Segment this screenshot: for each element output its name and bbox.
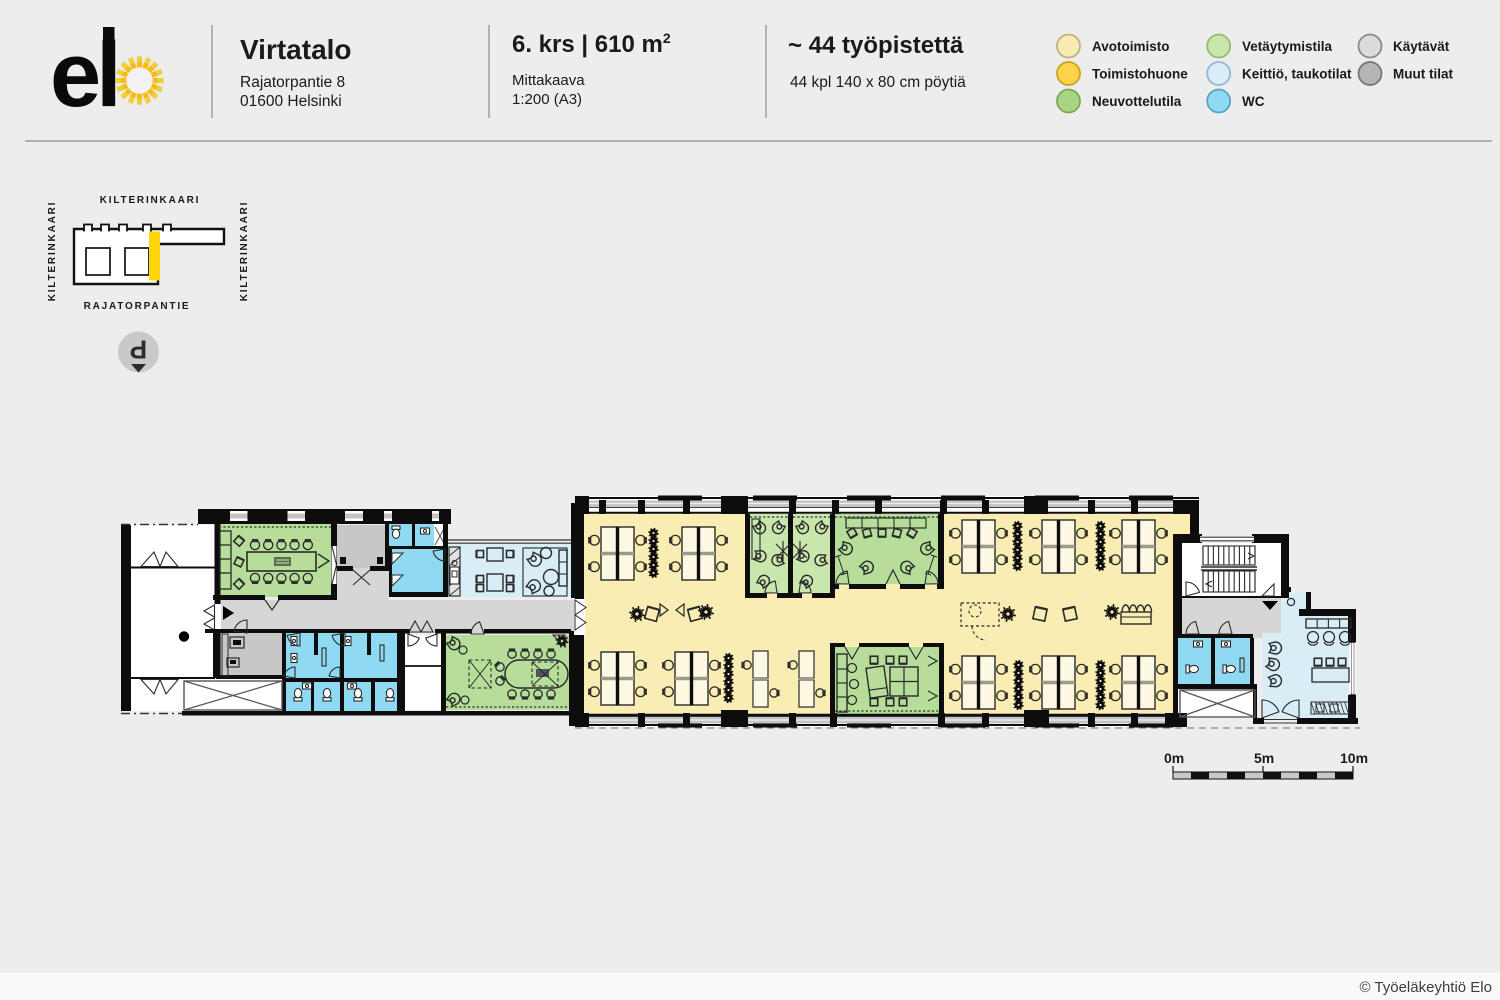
svg-text:RAJATORPANTIE: RAJATORPANTIE <box>84 301 191 312</box>
svg-text:Rajatorpantie 8: Rajatorpantie 8 <box>240 74 345 91</box>
svg-text:01600 Helsinki: 01600 Helsinki <box>240 93 342 110</box>
svg-text:P: P <box>130 335 147 365</box>
svg-text:Käytävät: Käytävät <box>1393 39 1450 54</box>
svg-text:WC: WC <box>1242 94 1265 109</box>
svg-text:KILTERINKAARI: KILTERINKAARI <box>100 195 200 206</box>
svg-text:5m: 5m <box>1254 750 1274 766</box>
svg-text:Muut tilat: Muut tilat <box>1393 67 1453 82</box>
svg-text:0m: 0m <box>1164 750 1184 766</box>
svg-text:KILTERINKAARI: KILTERINKAARI <box>47 201 58 301</box>
svg-text:10m: 10m <box>1340 750 1368 766</box>
svg-text:Toimistohuone: Toimistohuone <box>1092 67 1188 82</box>
svg-text:1:200 (A3): 1:200 (A3) <box>512 91 582 108</box>
svg-text:Vetäytymistila: Vetäytymistila <box>1242 39 1333 54</box>
svg-text:Virtatalo: Virtatalo <box>240 34 352 65</box>
svg-text:Keittiö, taukotilat: Keittiö, taukotilat <box>1242 67 1352 82</box>
svg-text:© Työeläkeyhtiö Elo: © Työeläkeyhtiö Elo <box>1359 979 1492 996</box>
svg-text:KILTERINKAARI: KILTERINKAARI <box>239 201 250 301</box>
svg-text:Avotoimisto: Avotoimisto <box>1092 39 1170 54</box>
svg-text:~ 44 työpistettä: ~ 44 työpistettä <box>788 32 964 59</box>
svg-text:Neuvottelutila: Neuvottelutila <box>1092 94 1182 109</box>
svg-text:44 kpl 140 x 80 cm pöytiä: 44 kpl 140 x 80 cm pöytiä <box>790 74 966 91</box>
svg-text:Mittakaava: Mittakaava <box>512 72 585 89</box>
svg-text:6. krs | 610 m2: 6. krs | 610 m2 <box>512 30 671 58</box>
